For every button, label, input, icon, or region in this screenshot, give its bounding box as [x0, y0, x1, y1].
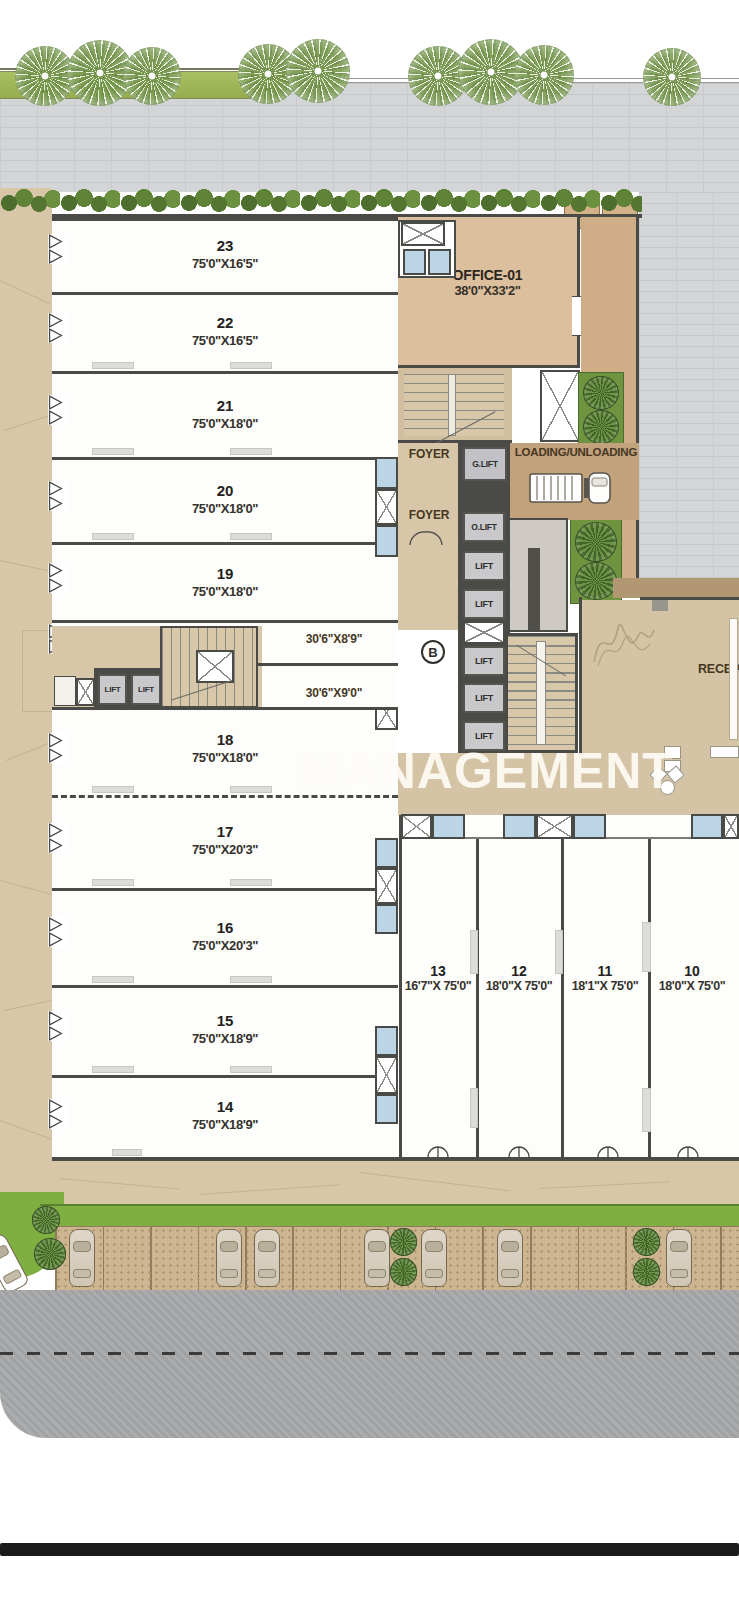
unit-row: 23 75'0"X16'5": [52, 218, 398, 292]
door-cell: [691, 814, 723, 839]
double-door-symbol: [427, 1144, 449, 1162]
loading-apron: [613, 578, 739, 598]
shrub-icon: [583, 376, 619, 410]
door-symbol: [48, 563, 66, 593]
car-icon: [216, 1229, 242, 1287]
road: [0, 1290, 739, 1438]
unit-row: 14 75'0"X18'9": [52, 1075, 398, 1157]
room-dim: 30'6"X9'0": [276, 686, 392, 700]
car-icon: [364, 1229, 390, 1287]
unit-dim: 75'0"X18'0": [192, 416, 258, 431]
outer-wall: [636, 217, 639, 578]
door-cell: [503, 814, 536, 839]
unit-dim: 75'0"X18'9": [192, 1117, 258, 1132]
door-cell: [403, 249, 426, 275]
unit-number: 20: [217, 481, 233, 501]
tree-icon: [514, 45, 574, 105]
g-lift-label: G.LIFT: [472, 459, 498, 469]
squiggle-decoration: [590, 614, 658, 674]
shaft-cell: [375, 489, 398, 525]
unit-number: 12: [511, 963, 527, 979]
foyer-label: FOYER: [398, 447, 460, 461]
grass-strip: [40, 1204, 739, 1228]
car-icon: [497, 1229, 523, 1287]
unit-number: 17: [217, 822, 233, 842]
shaft-cell: [401, 222, 445, 246]
office-name: OFFICE-01: [453, 267, 523, 283]
door-symbol: [48, 395, 66, 425]
unit-dim: 75'0"X18'9": [192, 1031, 258, 1046]
tree-icon: [643, 48, 701, 106]
car-icon: [666, 1229, 692, 1287]
room-dim: 30'6"X8'9": [276, 632, 392, 646]
office-dim: 38'0"X33'2": [454, 283, 520, 298]
unit-dim: 75'0"X16'5": [192, 256, 258, 271]
lift-label: LIFT: [138, 685, 154, 694]
door-symbol: [48, 823, 66, 853]
site-floor-plan: 23 75'0"X16'5" 22 75'0"X16'5" 21 75'0"X1…: [0, 0, 739, 1600]
unit-dim: 18'1"X 75'0": [572, 979, 639, 993]
unit-row: 15 75'0"X18'9": [52, 985, 398, 1075]
lift-box: G.LIFT: [463, 447, 507, 481]
wall-tick: [652, 600, 668, 611]
unit-number: 22: [217, 313, 233, 333]
door-symbol: [48, 1099, 66, 1129]
unit-dim: 16'7"X 75'0": [405, 979, 472, 993]
unit-row: 21 75'0"X18'0": [52, 371, 398, 457]
paved-plaza: [639, 192, 739, 578]
lift-box: LIFT: [463, 646, 505, 676]
room-divider: [258, 663, 398, 666]
shrub-icon: [390, 1258, 417, 1286]
shaft-cell: [723, 814, 739, 839]
stair-lift-shaft: [196, 650, 234, 683]
lift-box: LIFT: [463, 589, 505, 619]
unit-number: 18: [217, 730, 233, 750]
unit-column: 12 18'0"X 75'0": [471, 963, 567, 993]
shrub-icon: [390, 1228, 417, 1256]
watermark: MANAGEMENT: [300, 742, 674, 800]
unit-number: 23: [217, 236, 233, 256]
unit-dim: 75'0"X20'3": [192, 938, 258, 953]
shaft-cell: [375, 1056, 398, 1094]
lift-label: LIFT: [475, 599, 493, 609]
shrub-icon: [575, 562, 617, 600]
door-symbol: [48, 313, 66, 343]
door-cell: [573, 814, 606, 839]
shrub-icon: [633, 1258, 660, 1286]
lift-box: LIFT: [463, 683, 505, 713]
shaft-cell: [375, 868, 398, 904]
tree-icon: [286, 39, 350, 103]
unit-number: 15: [217, 1011, 233, 1031]
lobby-room: [54, 676, 76, 706]
unit-column: 10 18'0"X 75'0": [644, 963, 739, 993]
unit-dim: 18'0"X 75'0": [486, 979, 553, 993]
lift-box: O.LIFT: [463, 512, 505, 542]
road-centerline: [0, 1352, 739, 1355]
double-door-symbol: [677, 1144, 699, 1162]
o-lift-label: O.LIFT: [471, 522, 497, 532]
tree-icon: [123, 47, 181, 105]
unit-dim: 75'0"X20'3": [192, 842, 258, 857]
building-bottom-wall: [52, 1157, 739, 1161]
foyer-label: FOYER: [398, 508, 460, 522]
unit-dim: 75'0"X18'0": [192, 584, 258, 599]
door-symbol: [48, 1011, 66, 1041]
palm-icon: [34, 1238, 66, 1270]
unit-row: 16 75'0"X20'3": [52, 888, 398, 985]
unit-dim: 18'0"X 75'0": [659, 979, 726, 993]
hedge: [0, 188, 642, 216]
truck-icon: [528, 468, 612, 512]
shaft-cell: [401, 814, 432, 839]
double-door-symbol: [408, 530, 444, 550]
door-cell: [432, 814, 465, 839]
shaft-cell: [536, 814, 573, 839]
lift-label: LIFT: [475, 693, 493, 703]
double-door-symbol: [597, 1144, 619, 1162]
office-door: [572, 296, 581, 336]
unit-row: 20 75'0"X18'0": [52, 457, 398, 542]
car-icon: [254, 1229, 280, 1287]
door-cell: [428, 249, 451, 275]
shrub-icon: [575, 522, 617, 562]
door-cell: [375, 838, 398, 868]
door-cell: [375, 904, 398, 934]
reception-desk: [710, 746, 739, 758]
lift-box: LIFT: [131, 674, 161, 705]
unit-row: 19 75'0"X18'0": [52, 542, 398, 623]
lift-label: LIFT: [475, 561, 493, 571]
footer-bar: [0, 1543, 739, 1556]
lift-label: LIFT: [475, 656, 493, 666]
unit-number: 13: [430, 963, 446, 979]
shaft-cell: [76, 678, 95, 706]
door-symbol: [48, 234, 66, 264]
lift-label: LIFT: [104, 685, 120, 694]
unit-row: 22 75'0"X16'5": [52, 292, 398, 371]
car-icon: [69, 1229, 95, 1287]
shrub-icon: [583, 410, 619, 444]
unit-number: 16: [217, 918, 233, 938]
lift-box: LIFT: [98, 674, 127, 705]
unit-number: 21: [217, 396, 233, 416]
door-cell: [375, 1026, 398, 1056]
block-marker: B: [421, 640, 445, 664]
door-cell: [375, 525, 398, 557]
unit-dim: 75'0"X18'0": [192, 750, 258, 765]
palm-icon: [32, 1206, 60, 1234]
door-cell: [375, 1094, 398, 1124]
car-icon: [421, 1229, 447, 1287]
lift-label: LIFT: [475, 731, 493, 741]
door-cell: [375, 457, 398, 489]
unit-dim: 75'0"X16'5": [192, 333, 258, 348]
lift-box: LIFT: [463, 551, 505, 581]
unit-number: 10: [684, 963, 700, 979]
shrub-icon: [633, 1228, 660, 1256]
reception-counter: [729, 618, 738, 740]
door-symbol: [48, 917, 66, 947]
door-symbol: [48, 733, 66, 763]
unit-dim: 75'0"X18'0": [192, 501, 258, 516]
unit-row: 17 75'0"X20'3": [52, 795, 398, 888]
unit-number: 19: [217, 564, 233, 584]
unit-column: 11 18'1"X 75'0": [557, 963, 653, 993]
double-door-symbol: [508, 1144, 530, 1162]
unit-number: 11: [598, 963, 613, 979]
shaft-cell: [540, 370, 580, 442]
shaft-cell: [463, 621, 505, 644]
unit-number: 14: [217, 1097, 233, 1117]
loading-label: LOADING/UNLOADING: [512, 446, 640, 458]
door-symbol: [48, 481, 66, 511]
tree-icon: [15, 46, 75, 106]
